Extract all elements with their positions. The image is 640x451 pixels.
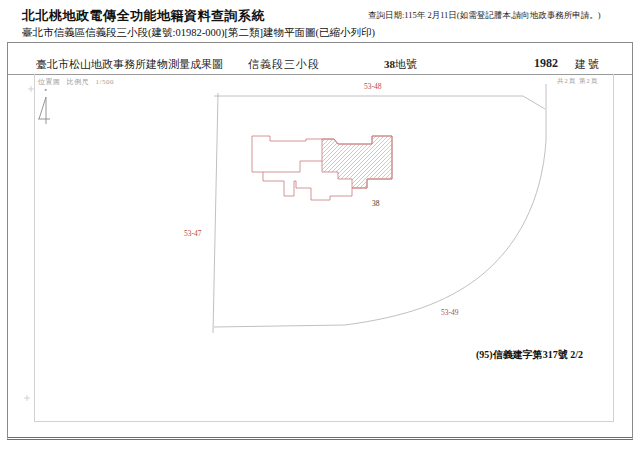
section-name: 信義段三小段 <box>248 57 320 72</box>
location-map-label: 位置圖 <box>38 78 61 86</box>
document-subtitle: 臺北市信義區信義段三小段(建號:01982-000)[第二類]建物平面圖(已縮小… <box>22 26 375 40</box>
office-title: 臺北市松山地政事務所建物測量成果圖 <box>36 57 223 72</box>
land-registry-report-page: 北北桃地政電傳全功能地籍資料查詢系統 查詢日期:115年 2月11日(如需登記謄… <box>0 0 640 451</box>
form-title-row: 臺北市松山地政事務所建物測量成果圖 信義段三小段 38地號 1982 建號 <box>8 43 632 75</box>
parcel-label-bottom: 53-49 <box>441 309 459 317</box>
land-number: 38地號 <box>384 57 417 72</box>
scale-label: 比例尺 <box>67 78 90 86</box>
land-number-value: 38 <box>384 58 395 70</box>
map-scale-note: 位置圖 比例尺 1/500 <box>38 77 118 87</box>
lot-number-label: 38 <box>372 200 380 208</box>
survey-result-form: 臺北市松山地政事務所建物測量成果圖 信義段三小段 38地號 1982 建號 共2… <box>7 42 633 440</box>
land-number-unit: 地號 <box>395 58 417 70</box>
building-number-unit: 建號 <box>575 57 601 72</box>
building-number-value: 1982 <box>534 56 558 71</box>
map-frame <box>34 74 614 422</box>
system-title: 北北桃地政電傳全功能地籍資料查詢系統 <box>22 7 265 25</box>
parcel-label-left: 53-47 <box>184 230 202 238</box>
scale-value: 1/500 <box>96 78 114 86</box>
certificate-number: (95)信義建字第317號 2/2 <box>476 348 583 362</box>
parcel-label-top: 53-48 <box>364 83 382 91</box>
query-date-note: 查詢日期:115年 2月11日(如需登記謄本,請向地政事務所申請。) <box>368 10 601 22</box>
